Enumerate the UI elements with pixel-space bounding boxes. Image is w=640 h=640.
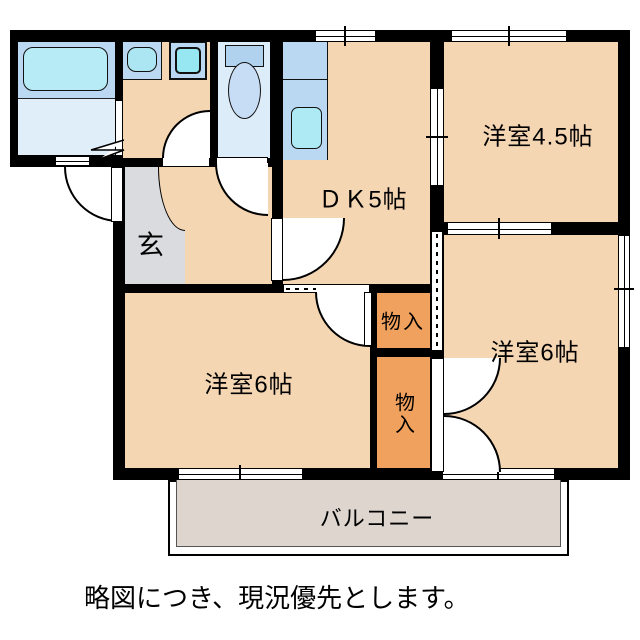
room-label-western-6-left: 洋室6帖 — [204, 365, 293, 400]
window-tick — [508, 26, 510, 46]
folding-door-icon — [88, 137, 125, 160]
wall-toilet-dk — [270, 30, 283, 158]
doorway-closet-double — [431, 358, 444, 472]
room-label-dk: ＤＫ5帖 — [318, 180, 407, 215]
wall-washroom-toilet — [210, 30, 218, 158]
doorway-dashes — [286, 288, 316, 290]
kitchen-sink-icon — [291, 107, 322, 149]
window-tick — [344, 26, 346, 46]
balcony-label: バルコニー — [320, 501, 435, 533]
doorway-dk — [271, 218, 283, 281]
kitchen-counter-divider — [283, 79, 328, 80]
western-6-left-door-panel — [364, 292, 372, 346]
room-label-entrance: 玄 — [137, 224, 165, 263]
wall-left-upper — [10, 30, 18, 165]
disclaimer-caption: 略図につき、現況優先とします。 — [84, 578, 470, 615]
sliding-door-tick — [498, 218, 500, 239]
wall-mid-horizontal — [113, 284, 444, 293]
room-label-western-45: 洋室4.5帖 — [482, 117, 593, 152]
toilet-bowl-icon — [228, 62, 261, 119]
wash-basin-icon — [127, 47, 157, 72]
sliding-door-tick — [426, 136, 448, 138]
room-label-closet-upper: 物入 — [381, 306, 425, 335]
room-label-closet-lower: 物入 — [389, 392, 418, 436]
room-label-western-6-right: 洋室6帖 — [490, 333, 579, 368]
bathtub-icon — [23, 47, 108, 91]
window-bathroom — [55, 156, 90, 166]
doorway-washroom — [162, 157, 210, 167]
sliding-partition-dashes — [436, 234, 438, 348]
window-right — [618, 235, 630, 348]
entrance-door-panel — [111, 167, 123, 222]
washing-machine-drum — [175, 47, 201, 74]
floor-plan: ＤＫ5帖 洋室4.5帖 洋室6帖 洋室6帖 玄 物入 物入 バルコニー 略図につ… — [0, 0, 640, 640]
window-tick — [614, 288, 634, 290]
